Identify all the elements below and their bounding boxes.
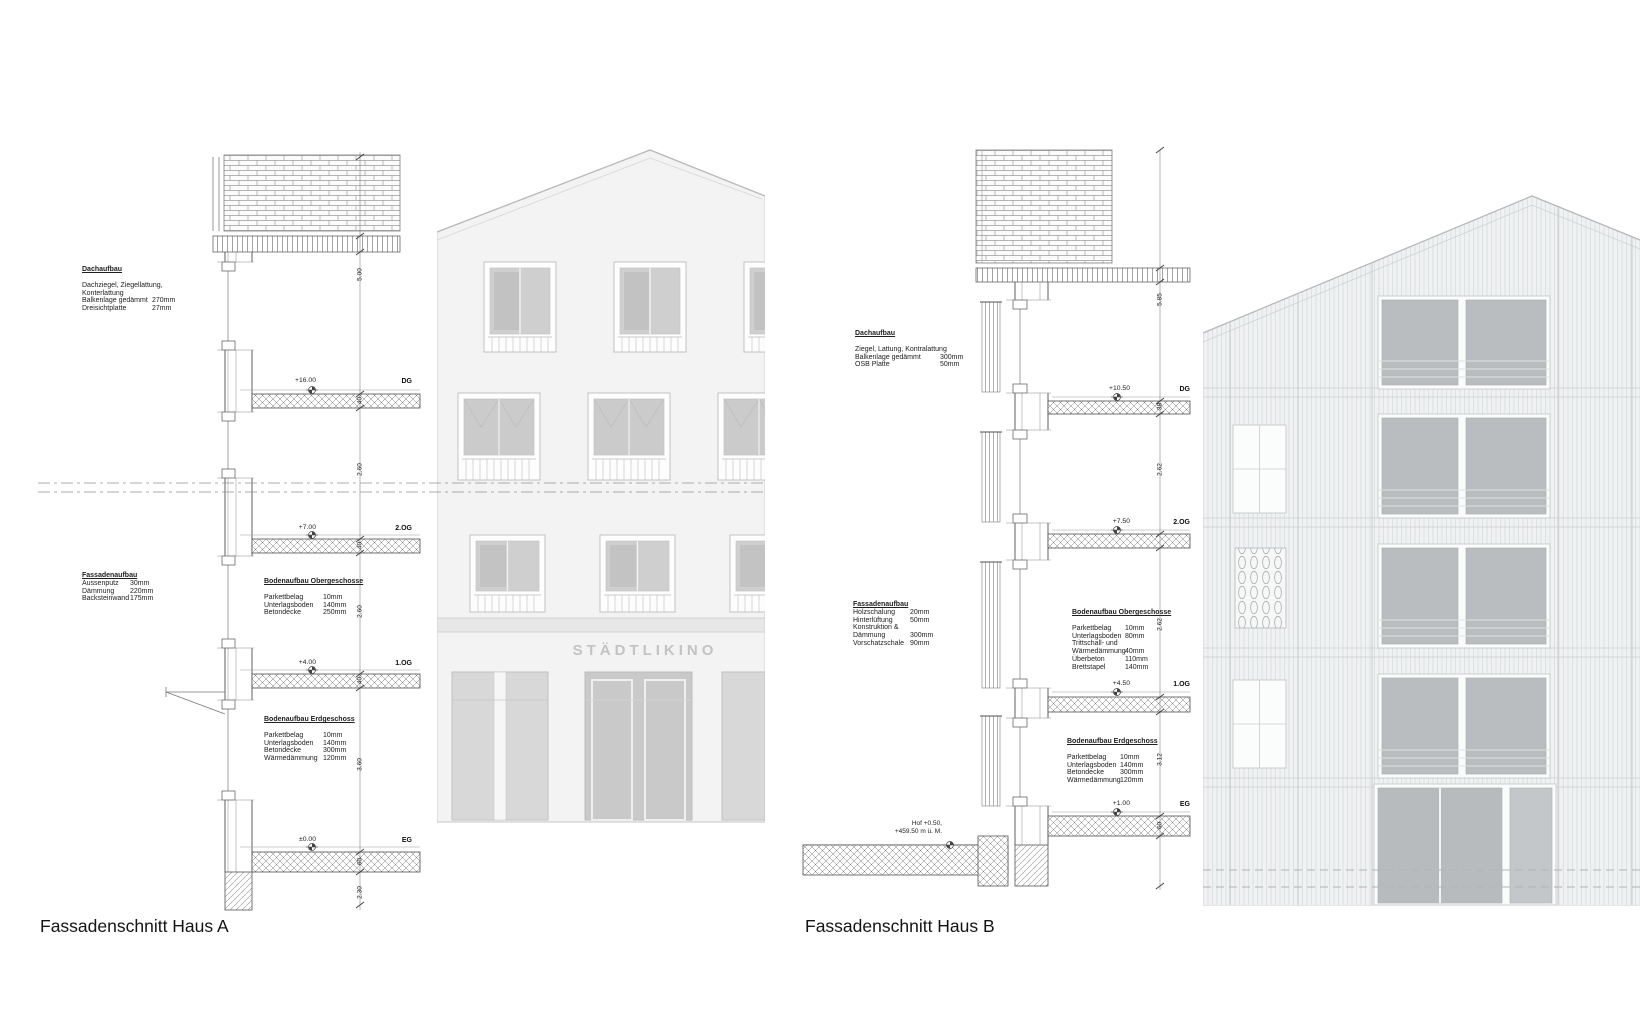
spec-block-dachaufbau-a: Dachaufbau Dachziegel, Ziegellattung, Ko… <box>82 266 175 313</box>
spec-row: Konterlattung <box>82 290 175 298</box>
spec-block-boden-eg-a: Bodenaufbau Erdgeschoss Parkettbelag10mm… <box>264 716 355 763</box>
level-value: +4.00 <box>272 659 316 666</box>
spec-row: Balkenlage gedämmt270mm <box>82 297 175 305</box>
spec-row: Unterlagsboden140mm <box>264 602 363 610</box>
spec-row: Wärmedämmung120mm <box>1067 777 1158 785</box>
ground-level-note: Hof +0.50, +459.50 m ü. M. <box>858 820 942 836</box>
haus-a-elevation <box>437 150 816 822</box>
level-label: 2.OG <box>378 525 412 532</box>
dim-value: 60 <box>1156 813 1165 839</box>
level-value: ±0.00 <box>272 836 316 843</box>
wall-window <box>217 412 254 478</box>
dim-value: 2.60 <box>356 457 365 483</box>
level-value: +7.00 <box>272 524 316 531</box>
sheet-title-haus-b: Fassadenschnitt Haus B <box>805 916 995 937</box>
dim-value: 40 <box>356 388 365 414</box>
wall-window <box>217 700 254 800</box>
spec-row: Konstruktion & <box>853 624 933 632</box>
dim-value: 40 <box>356 533 365 559</box>
spec-block-dachaufbau-b: Dachaufbau Ziegel, Lattung, Kontralattun… <box>855 330 963 369</box>
spec-row: OSB Platte50mm <box>855 361 963 369</box>
level-value: +4.50 <box>1086 680 1130 687</box>
dim-value: 38 <box>1156 394 1165 420</box>
elevation-window-row <box>1378 544 1550 648</box>
spec-row: Dachziegel, Ziegellattung, <box>82 282 175 290</box>
sheet-title-haus-a: Fassadenschnitt Haus A <box>40 916 229 937</box>
spec-row: Betondecke300mm <box>1067 769 1158 777</box>
level-label: 1.OG <box>1156 681 1190 688</box>
spec-row: Dreisichtplatte27mm <box>82 305 175 313</box>
dim-value: 2.60 <box>356 599 365 625</box>
spec-row: Dämmung220mm <box>82 588 153 596</box>
level-label: EG <box>378 837 412 844</box>
spec-block-fassadenaufbau-b: Fassadenaufbau Holzschalung20mm Hinterlü… <box>853 601 933 648</box>
dim-value: 2.62 <box>1156 612 1165 638</box>
dim-value: 2.30 <box>356 880 365 906</box>
spec-block-fassadenaufbau-a: Fassadenaufbau Aussenputz30mm Dämmung220… <box>82 572 153 603</box>
spec-row: Überbeton110mm <box>1072 656 1171 664</box>
dim-value: 3.12 <box>1156 747 1165 773</box>
spec-title: Fassadenaufbau <box>82 572 153 580</box>
drawing-sheet: Dachaufbau Dachziegel, Ziegellattung, Ko… <box>0 0 1640 1020</box>
dim-value: 5.85 <box>1156 287 1165 313</box>
wall-window <box>1006 718 1051 806</box>
drawing-linework <box>0 0 1640 1020</box>
wall-window <box>217 556 254 648</box>
ornament-panel <box>1235 548 1286 628</box>
spec-row: Hinterlüftung50mm <box>853 617 933 625</box>
spec-row: Wärmedämmung40mm <box>1072 648 1171 656</box>
level-label: DG <box>1156 386 1190 393</box>
wall-window <box>1006 300 1051 393</box>
elevation-window-row <box>1378 296 1550 389</box>
elevation-window-row <box>1378 414 1550 518</box>
level-label: 1.OG <box>378 660 412 667</box>
spec-row: Ziegel, Lattung, Kontralattung <box>855 346 963 354</box>
spec-row: Trittschall- und <box>1072 640 1171 648</box>
haus-b-elevation <box>1203 196 1640 905</box>
dim-value: 60 <box>356 849 365 875</box>
spec-row: Betondecke250mm <box>264 609 363 617</box>
spec-row: Vorschatzschale90mm <box>853 640 933 648</box>
dim-value: 2.62 <box>1156 457 1165 483</box>
spec-row: Holzschalung20mm <box>853 609 933 617</box>
spec-row: Betondecke300mm <box>264 747 355 755</box>
spec-title: Bodenaufbau Obergeschosse <box>264 578 363 586</box>
spec-title: Dachaufbau <box>855 330 963 338</box>
spec-row: Parkettbelag10mm <box>264 594 363 602</box>
spec-row: Brettstapel140mm <box>1072 664 1171 672</box>
level-label: DG <box>378 378 412 385</box>
level-value: +7.50 <box>1086 518 1130 525</box>
spec-title: Bodenaufbau Erdgeschoss <box>1067 738 1158 746</box>
elevation-window-row <box>1378 674 1550 778</box>
spec-row: Aussenputz30mm <box>82 580 153 588</box>
ground-level-line2: +459.50 m ü. M. <box>858 828 942 836</box>
dim-value: 5.00 <box>356 262 365 288</box>
spec-row: Dämmung300mm <box>853 632 933 640</box>
elevation-left-window <box>1233 425 1286 513</box>
spec-row: Backsteinwand175mm <box>82 595 153 603</box>
spec-title: Bodenaufbau Erdgeschoss <box>264 716 355 724</box>
dim-value: 3.60 <box>356 752 365 778</box>
spec-block-boden-og-a: Bodenaufbau Obergeschosse Parkettbelag10… <box>264 578 363 617</box>
level-label: 2.OG <box>1156 519 1190 526</box>
spec-row: Unterlagsboden140mm <box>1067 762 1158 770</box>
spec-title: Dachaufbau <box>82 266 175 274</box>
wall-window <box>1006 430 1051 523</box>
spec-row: Parkettbelag10mm <box>1067 754 1158 762</box>
storefront-sign: STÄDTLIKINO <box>480 642 810 659</box>
ground-level-line1: Hof +0.50, <box>858 820 942 828</box>
level-label: EG <box>1156 801 1190 808</box>
dim-value: 40 <box>356 668 365 694</box>
spec-row: Balkenlage gedämmt300mm <box>855 354 963 362</box>
wall-window <box>217 262 254 350</box>
level-value: +1.00 <box>1086 800 1130 807</box>
wall-window <box>1006 560 1051 688</box>
elevation-left-window <box>1233 680 1286 768</box>
spec-row: Unterlagsboden140mm <box>264 740 355 748</box>
level-value: +16.00 <box>272 377 316 384</box>
spec-row: Wärmedämmung120mm <box>264 755 355 763</box>
level-value: +10.50 <box>1086 385 1130 392</box>
spec-row: Parkettbelag10mm <box>264 732 355 740</box>
spec-block-boden-eg-b: Bodenaufbau Erdgeschoss Parkettbelag10mm… <box>1067 738 1158 785</box>
spec-title: Fassadenaufbau <box>853 601 933 609</box>
